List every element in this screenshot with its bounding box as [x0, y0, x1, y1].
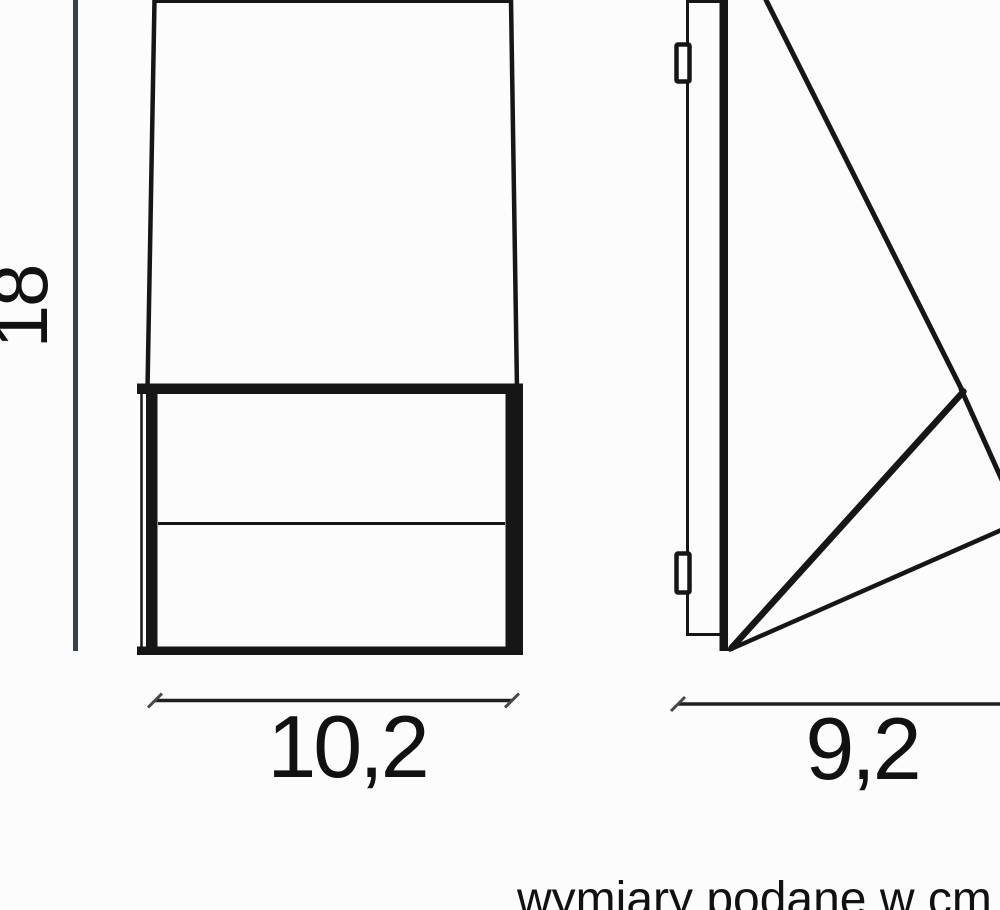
front-lower-right-band: [506, 392, 524, 649]
front-bottom-bar: [137, 647, 523, 656]
shade-front-upper-edge: [961, 389, 1000, 489]
width-dimension-label: 10,2: [267, 703, 426, 791]
depth-dimension-label: 9,2: [805, 705, 918, 793]
mounting-tab-top: [677, 45, 690, 82]
height-dimension-label: 18: [0, 266, 59, 349]
dimension-diagram: 18 10,2 9,2 wymiary podane w cm: [0, 0, 1000, 910]
front-view: [137, 0, 523, 655]
shade-top-diagonal: [766, 0, 963, 391]
mounting-tab-bottom: [677, 554, 690, 593]
shade-bottom-edge: [730, 528, 1000, 650]
front-left-edge: [148, 0, 155, 389]
front-right-edge: [511, 0, 517, 389]
shade-fold-line: [732, 392, 964, 649]
front-divider-bar: [137, 384, 523, 395]
plate-right-band: [720, 0, 729, 651]
units-footnote: wymiary podane w cm: [517, 873, 992, 910]
side-view: [677, 0, 1000, 651]
front-lower-left-band: [146, 392, 158, 651]
dimension-lines: [76, 0, 1000, 711]
